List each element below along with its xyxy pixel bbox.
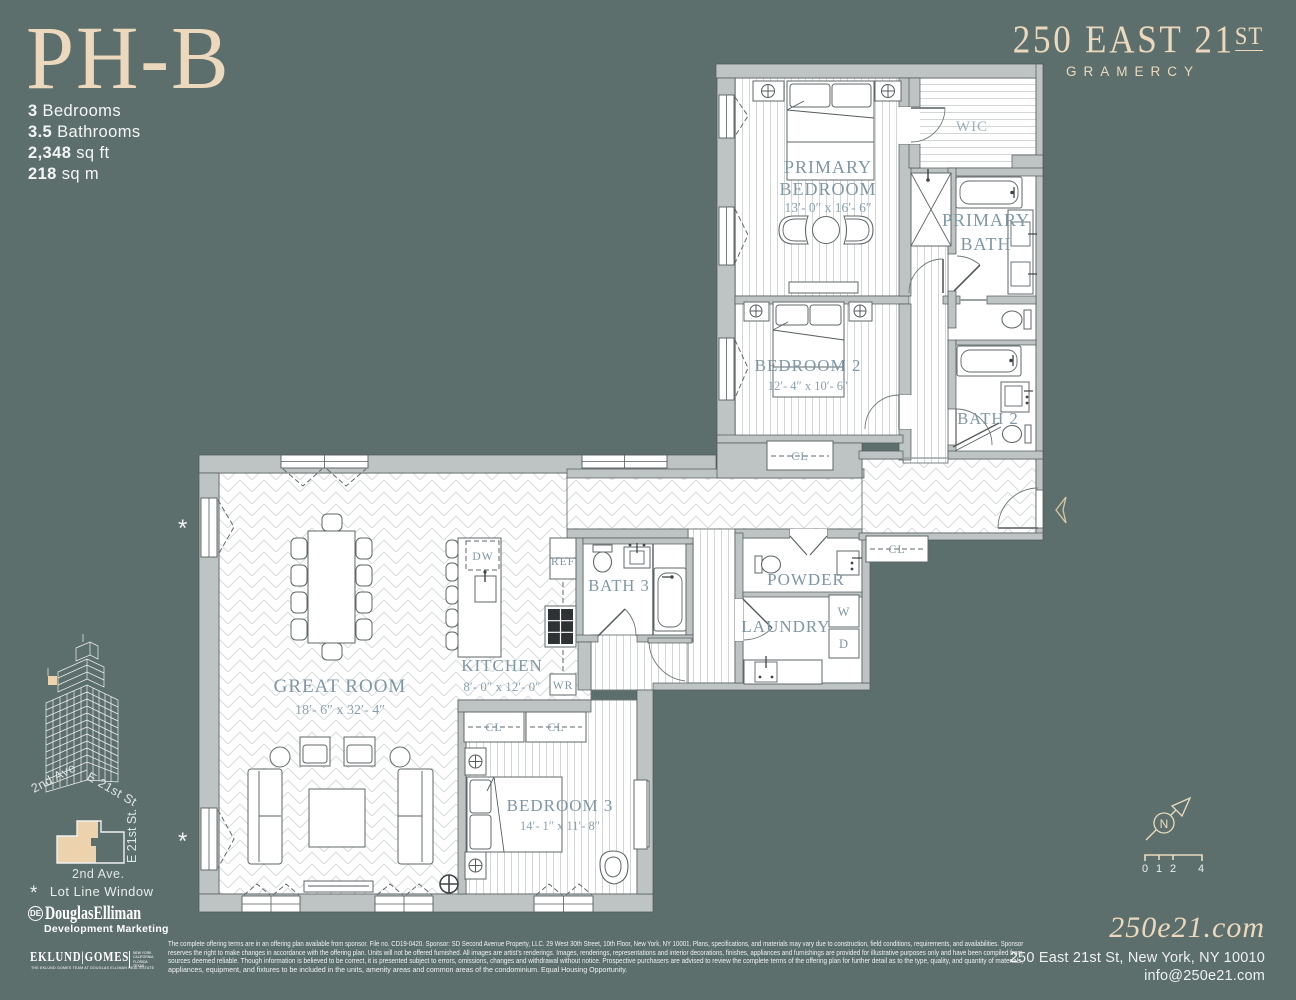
svg-text:E 21st St.: E 21st St.	[125, 809, 139, 863]
svg-text:BEDROOM 2: BEDROOM 2	[755, 356, 862, 375]
svg-text:GREAT ROOM: GREAT ROOM	[274, 676, 407, 697]
svg-text:CL: CL	[547, 720, 564, 734]
svg-text:18′- 6″ x 32′- 4″: 18′- 6″ x 32′- 4″	[295, 703, 385, 718]
svg-text:*: *	[178, 828, 187, 855]
svg-text:REF: REF	[551, 556, 575, 568]
svg-text:2: 2	[1170, 863, 1176, 875]
svg-text:CL: CL	[791, 449, 808, 463]
svg-text:LAUNDRY: LAUNDRY	[741, 617, 830, 636]
svg-text:N: N	[1160, 817, 1169, 831]
svg-text:W: W	[838, 605, 851, 619]
svg-text:8′- 0″ x 12′- 0″: 8′- 0″ x 12′- 0″	[463, 679, 540, 694]
svg-text:2nd Ave: 2nd Ave	[29, 761, 78, 796]
svg-text:*: *	[178, 515, 187, 542]
svg-text:WIC: WIC	[956, 119, 988, 135]
svg-text:DW: DW	[472, 551, 493, 563]
svg-text:4: 4	[1198, 863, 1204, 875]
svg-text:1: 1	[1156, 863, 1162, 875]
svg-text:BATH: BATH	[960, 234, 1011, 254]
svg-text:BATH 2: BATH 2	[957, 409, 1018, 428]
svg-text:KITCHEN: KITCHEN	[461, 656, 543, 675]
svg-text:12′- 4″ x 10′- 6″: 12′- 4″ x 10′- 6″	[768, 379, 848, 393]
svg-text:BEDROOM: BEDROOM	[779, 179, 876, 199]
svg-text:E 21st St: E 21st St	[85, 769, 140, 809]
svg-text:PRIMARY: PRIMARY	[784, 157, 872, 177]
svg-text:BATH 3: BATH 3	[588, 576, 649, 595]
svg-text:BEDROOM 3: BEDROOM 3	[507, 796, 614, 815]
svg-text:D: D	[839, 637, 849, 651]
svg-text:WR: WR	[553, 680, 574, 692]
svg-text:CL: CL	[485, 720, 502, 734]
svg-text:14′- 1″ x 11′- 8″: 14′- 1″ x 11′- 8″	[520, 819, 600, 833]
svg-text:13′- 0″ x 16′- 6″: 13′- 0″ x 16′- 6″	[785, 200, 872, 215]
svg-text:CL: CL	[888, 542, 905, 556]
svg-text:PRIMARY: PRIMARY	[942, 210, 1030, 230]
svg-text:POWDER: POWDER	[767, 570, 845, 589]
svg-text:0: 0	[1142, 863, 1148, 875]
